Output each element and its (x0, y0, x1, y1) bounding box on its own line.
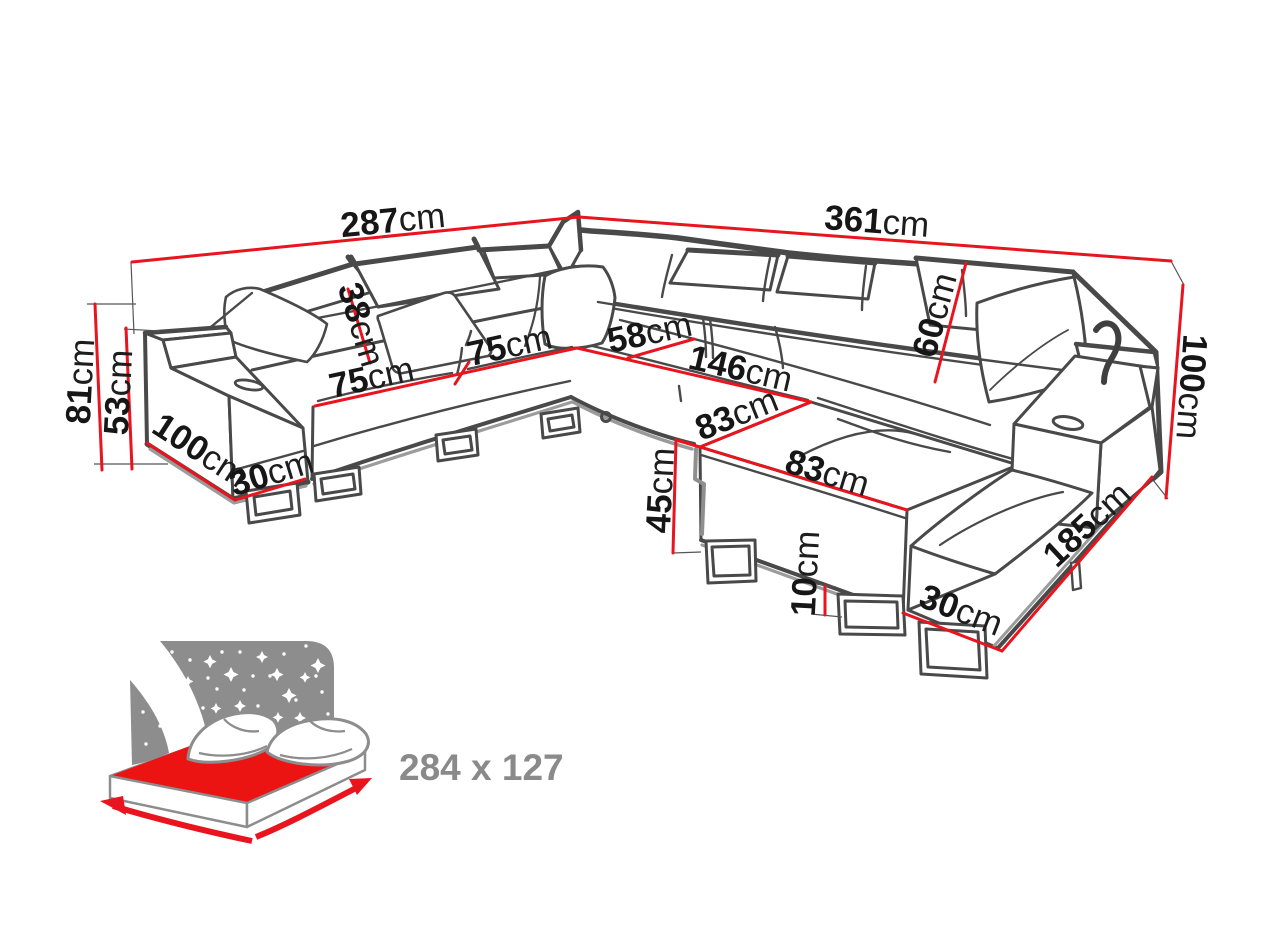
svg-text:45cm: 45cm (639, 447, 682, 535)
svg-text:100cm: 100cm (1168, 333, 1214, 441)
svg-text:284 x 127: 284 x 127 (399, 747, 564, 788)
svg-text:81cm: 81cm (59, 338, 102, 426)
svg-text:10cm: 10cm (784, 530, 827, 618)
svg-text:53cm: 53cm (97, 349, 140, 437)
svg-text:361cm: 361cm (823, 198, 931, 245)
